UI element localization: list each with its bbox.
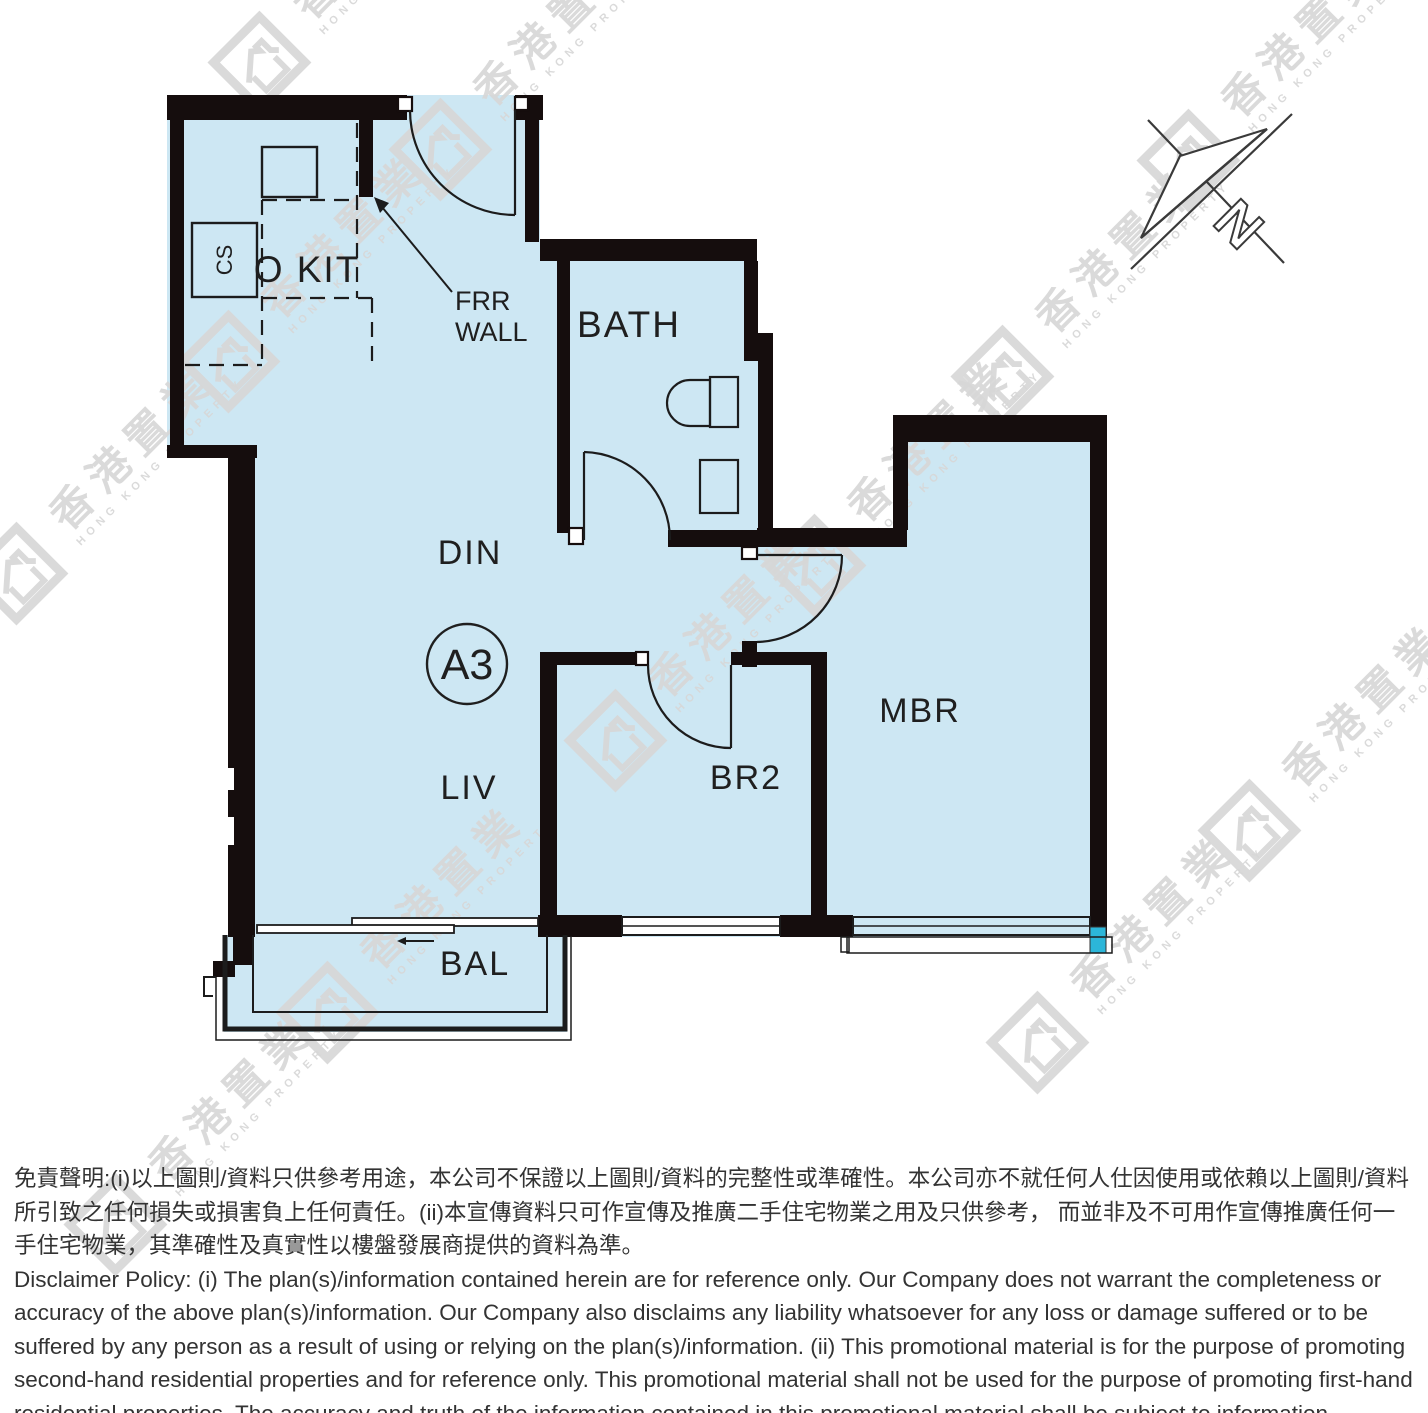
- walls: [167, 95, 1107, 977]
- room-label-bedroom2: BR2: [710, 759, 782, 797]
- disclaimer-zh: 免責聲明:(i)以上圖則/資料只供參考用途，本公司不保證以上圖則/資料的完整性或…: [14, 1162, 1416, 1263]
- bath-fixtures: [667, 377, 738, 513]
- callout-arrowhead: [374, 197, 389, 213]
- balcony-railing: [204, 935, 571, 1040]
- room-label-master-bedroom: MBR: [879, 692, 961, 730]
- frr-wall-label-line1: FRR: [455, 286, 511, 316]
- window-accent: [1090, 927, 1106, 953]
- room-label-dining: DIN: [438, 534, 503, 572]
- slide-direction-arrow: [397, 937, 406, 945]
- stove-label: CS: [212, 245, 237, 276]
- unit-label: A3: [441, 641, 494, 689]
- floor-plan-page: 香港置業 HONG KONG PROPERTY 香港置業 HONG KONG P…: [0, 0, 1428, 1413]
- frr-wall-callout: [374, 197, 452, 292]
- bath-door-swing: [584, 452, 670, 540]
- disclaimer-en: Disclaimer Policy: (i) The plan(s)/infor…: [14, 1263, 1416, 1413]
- room-label-living: LIV: [440, 769, 497, 807]
- north-arrow: N: [1131, 114, 1292, 269]
- room-label-open-kitchen: O KIT: [254, 249, 361, 290]
- disclaimer-block: 免責聲明:(i)以上圖則/資料只供參考用途，本公司不保證以上圖則/資料的完整性或…: [14, 1162, 1416, 1413]
- balcony-sliding-door: [257, 918, 538, 945]
- unit-badge: A3: [427, 624, 507, 704]
- mbr-door-swing: [757, 555, 842, 642]
- room-label-bath: BATH: [577, 304, 681, 345]
- br2-door-swing: [648, 665, 731, 748]
- basin: [700, 460, 738, 513]
- toilet-bowl: [667, 380, 710, 426]
- room-label-balcony: BAL: [440, 945, 510, 983]
- windows: [622, 917, 1112, 953]
- frr-wall-label-line2: WALL: [455, 317, 528, 347]
- kitchen-appliance: [262, 147, 317, 197]
- mbr-window-sill: [847, 937, 1112, 953]
- north-letter: N: [1202, 187, 1275, 260]
- entrance-door-swing: [410, 110, 515, 215]
- toilet-tank: [710, 377, 738, 427]
